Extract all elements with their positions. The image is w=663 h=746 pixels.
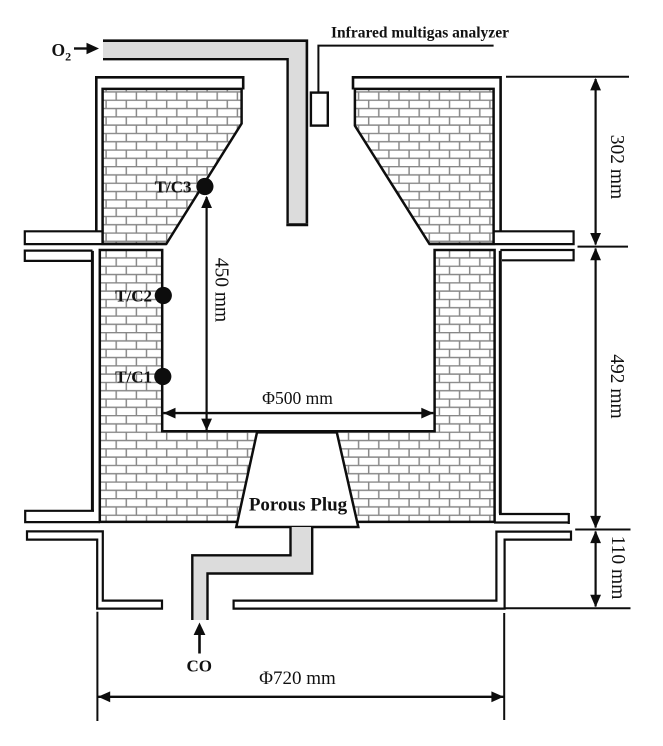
svg-text:Porous Plug: Porous Plug bbox=[249, 495, 348, 516]
svg-text:CO: CO bbox=[186, 656, 212, 675]
svg-text:Φ720 mm: Φ720 mm bbox=[259, 668, 336, 689]
svg-text:T/C3: T/C3 bbox=[155, 177, 192, 196]
svg-text:492 mm: 492 mm bbox=[606, 354, 627, 418]
svg-text:Φ500 mm: Φ500 mm bbox=[262, 388, 333, 408]
svg-text:T/C2: T/C2 bbox=[115, 286, 152, 305]
svg-text:302 mm: 302 mm bbox=[606, 135, 627, 199]
svg-text:Infrared multigas analyzer: Infrared multigas analyzer bbox=[331, 25, 509, 42]
svg-text:110 mm: 110 mm bbox=[607, 536, 628, 600]
svg-text:450 mm: 450 mm bbox=[211, 258, 232, 322]
svg-text:T/C1: T/C1 bbox=[115, 367, 152, 386]
